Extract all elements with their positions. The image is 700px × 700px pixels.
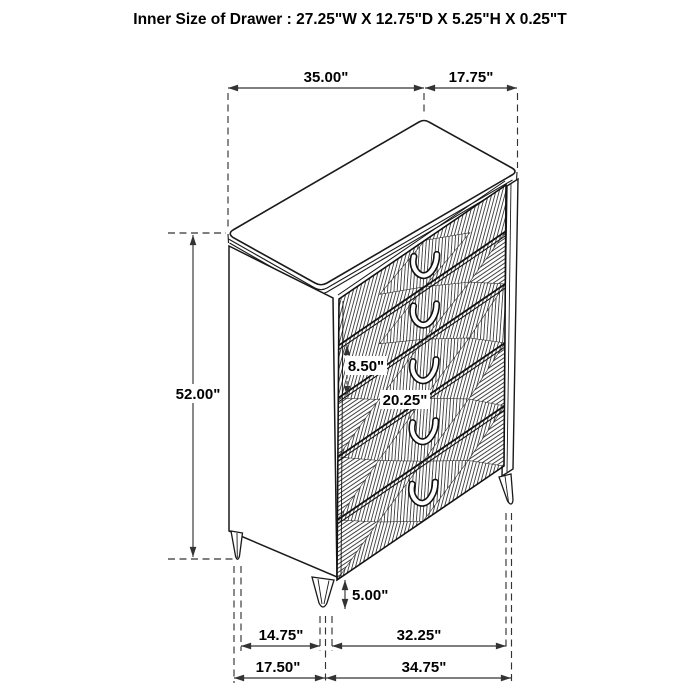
chest-dimension-diagram-page: Inner Size of Drawer : 27.25"W X 12.75"D…: [0, 0, 700, 700]
dim-top-depth-label: 17.75": [449, 69, 494, 86]
page-title: Inner Size of Drawer : 27.25"W X 12.75"D…: [0, 11, 700, 29]
dim-drawer-width-label: 20.25": [383, 392, 428, 409]
dim-front-inner-label: 14.75": [259, 627, 304, 644]
dim-top-width-label: 35.00": [304, 69, 349, 86]
dim-side-inner-label: 32.25": [397, 627, 442, 644]
dim-height-label: 52.00": [176, 386, 221, 403]
dim-front-outer-label: 17.50": [256, 659, 301, 676]
dim-drawer-height-label: 8.50": [348, 358, 384, 375]
side-panel: [229, 246, 337, 577]
dim-leg-height-label: 5.00": [352, 587, 388, 604]
top-corner-edge: [228, 234, 229, 243]
front-leg: [312, 577, 334, 607]
chest-line-drawing: 35.00" 17.75" 52.00": [0, 0, 700, 700]
dim-side-outer-label: 34.75": [402, 659, 447, 676]
right-leg: [499, 474, 513, 504]
